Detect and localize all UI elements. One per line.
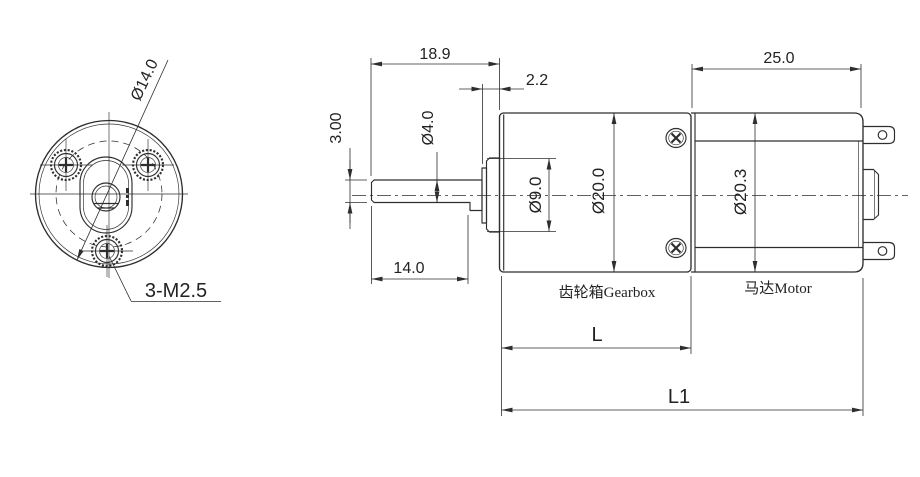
side-view: 18.9 2.2 3.00 Ø4.0 xyxy=(328,46,908,416)
center-boss-obround xyxy=(80,157,132,233)
dim-gearbox-length-text: L xyxy=(591,324,602,346)
tiny-stamp-mark xyxy=(126,188,129,206)
dim-motor-dia: Ø20.3 xyxy=(731,113,755,272)
dim-flat-length-text: 14.0 xyxy=(393,260,424,277)
mounting-screw-top-left xyxy=(40,139,92,191)
dim-total-length-text: L1 xyxy=(668,386,690,408)
dim-25-0: 25.0 xyxy=(692,50,861,108)
label-motor: 马达Motor xyxy=(744,280,812,297)
dim-shaft-diameter-text: Ø4.0 xyxy=(420,111,437,146)
gear-motor-technical-drawing: Ø14.0 3-M2.5 xyxy=(0,0,920,477)
mounting-screw-bottom xyxy=(81,225,133,277)
phillips-cross-icon xyxy=(100,244,114,258)
dim-shaft-length-text: 18.9 xyxy=(419,46,450,63)
phillips-cross-icon xyxy=(59,158,73,172)
phillips-cross-icon xyxy=(141,158,155,172)
terminal-hole-top xyxy=(878,131,887,140)
dim-3-00: 3.00 xyxy=(328,112,367,229)
screw-callout-leader xyxy=(109,256,131,301)
joint-screw-top xyxy=(666,129,686,148)
dim-gearbox-dia: Ø20.0 xyxy=(589,113,614,272)
phillips-cross-icon xyxy=(672,244,681,253)
rear-bearing-boss xyxy=(863,170,879,220)
dim-boss-diameter-text: Ø9.0 xyxy=(526,177,545,214)
bolt-circle-leader-line xyxy=(77,60,168,260)
phillips-cross-icon xyxy=(672,134,681,143)
dim-screw-spec: 3-M2.5 xyxy=(145,280,207,302)
dim-boss-protrusion-text: 2.2 xyxy=(526,72,548,89)
dim-shaft-dia: Ø4.0 xyxy=(420,111,437,203)
dim-bolt-circle-diameter: Ø14.0 xyxy=(128,57,162,104)
joint-screw-bottom xyxy=(666,239,686,258)
bearing-boss xyxy=(487,158,500,232)
dim-motor-diameter-text: Ø20.3 xyxy=(731,169,750,215)
dim-boss-dia: Ø9.0 xyxy=(487,159,556,232)
drawing-canvas: Ø14.0 3-M2.5 xyxy=(0,0,920,477)
dim-motor-length-text: 25.0 xyxy=(763,50,794,67)
terminal-hole-bottom xyxy=(878,247,887,256)
label-gearbox: 齿轮箱Gearbox xyxy=(559,284,656,301)
motor-outline xyxy=(691,113,863,272)
dim-14-0: 14.0 xyxy=(372,206,469,284)
front-view: Ø14.0 3-M2.5 xyxy=(30,57,221,302)
dim-L1: L1 xyxy=(502,278,864,416)
center-boss-obround-inner xyxy=(84,161,129,230)
dim-flat-depth-text: 3.00 xyxy=(328,112,345,143)
dim-gearbox-diameter-text: Ø20.0 xyxy=(589,168,608,214)
